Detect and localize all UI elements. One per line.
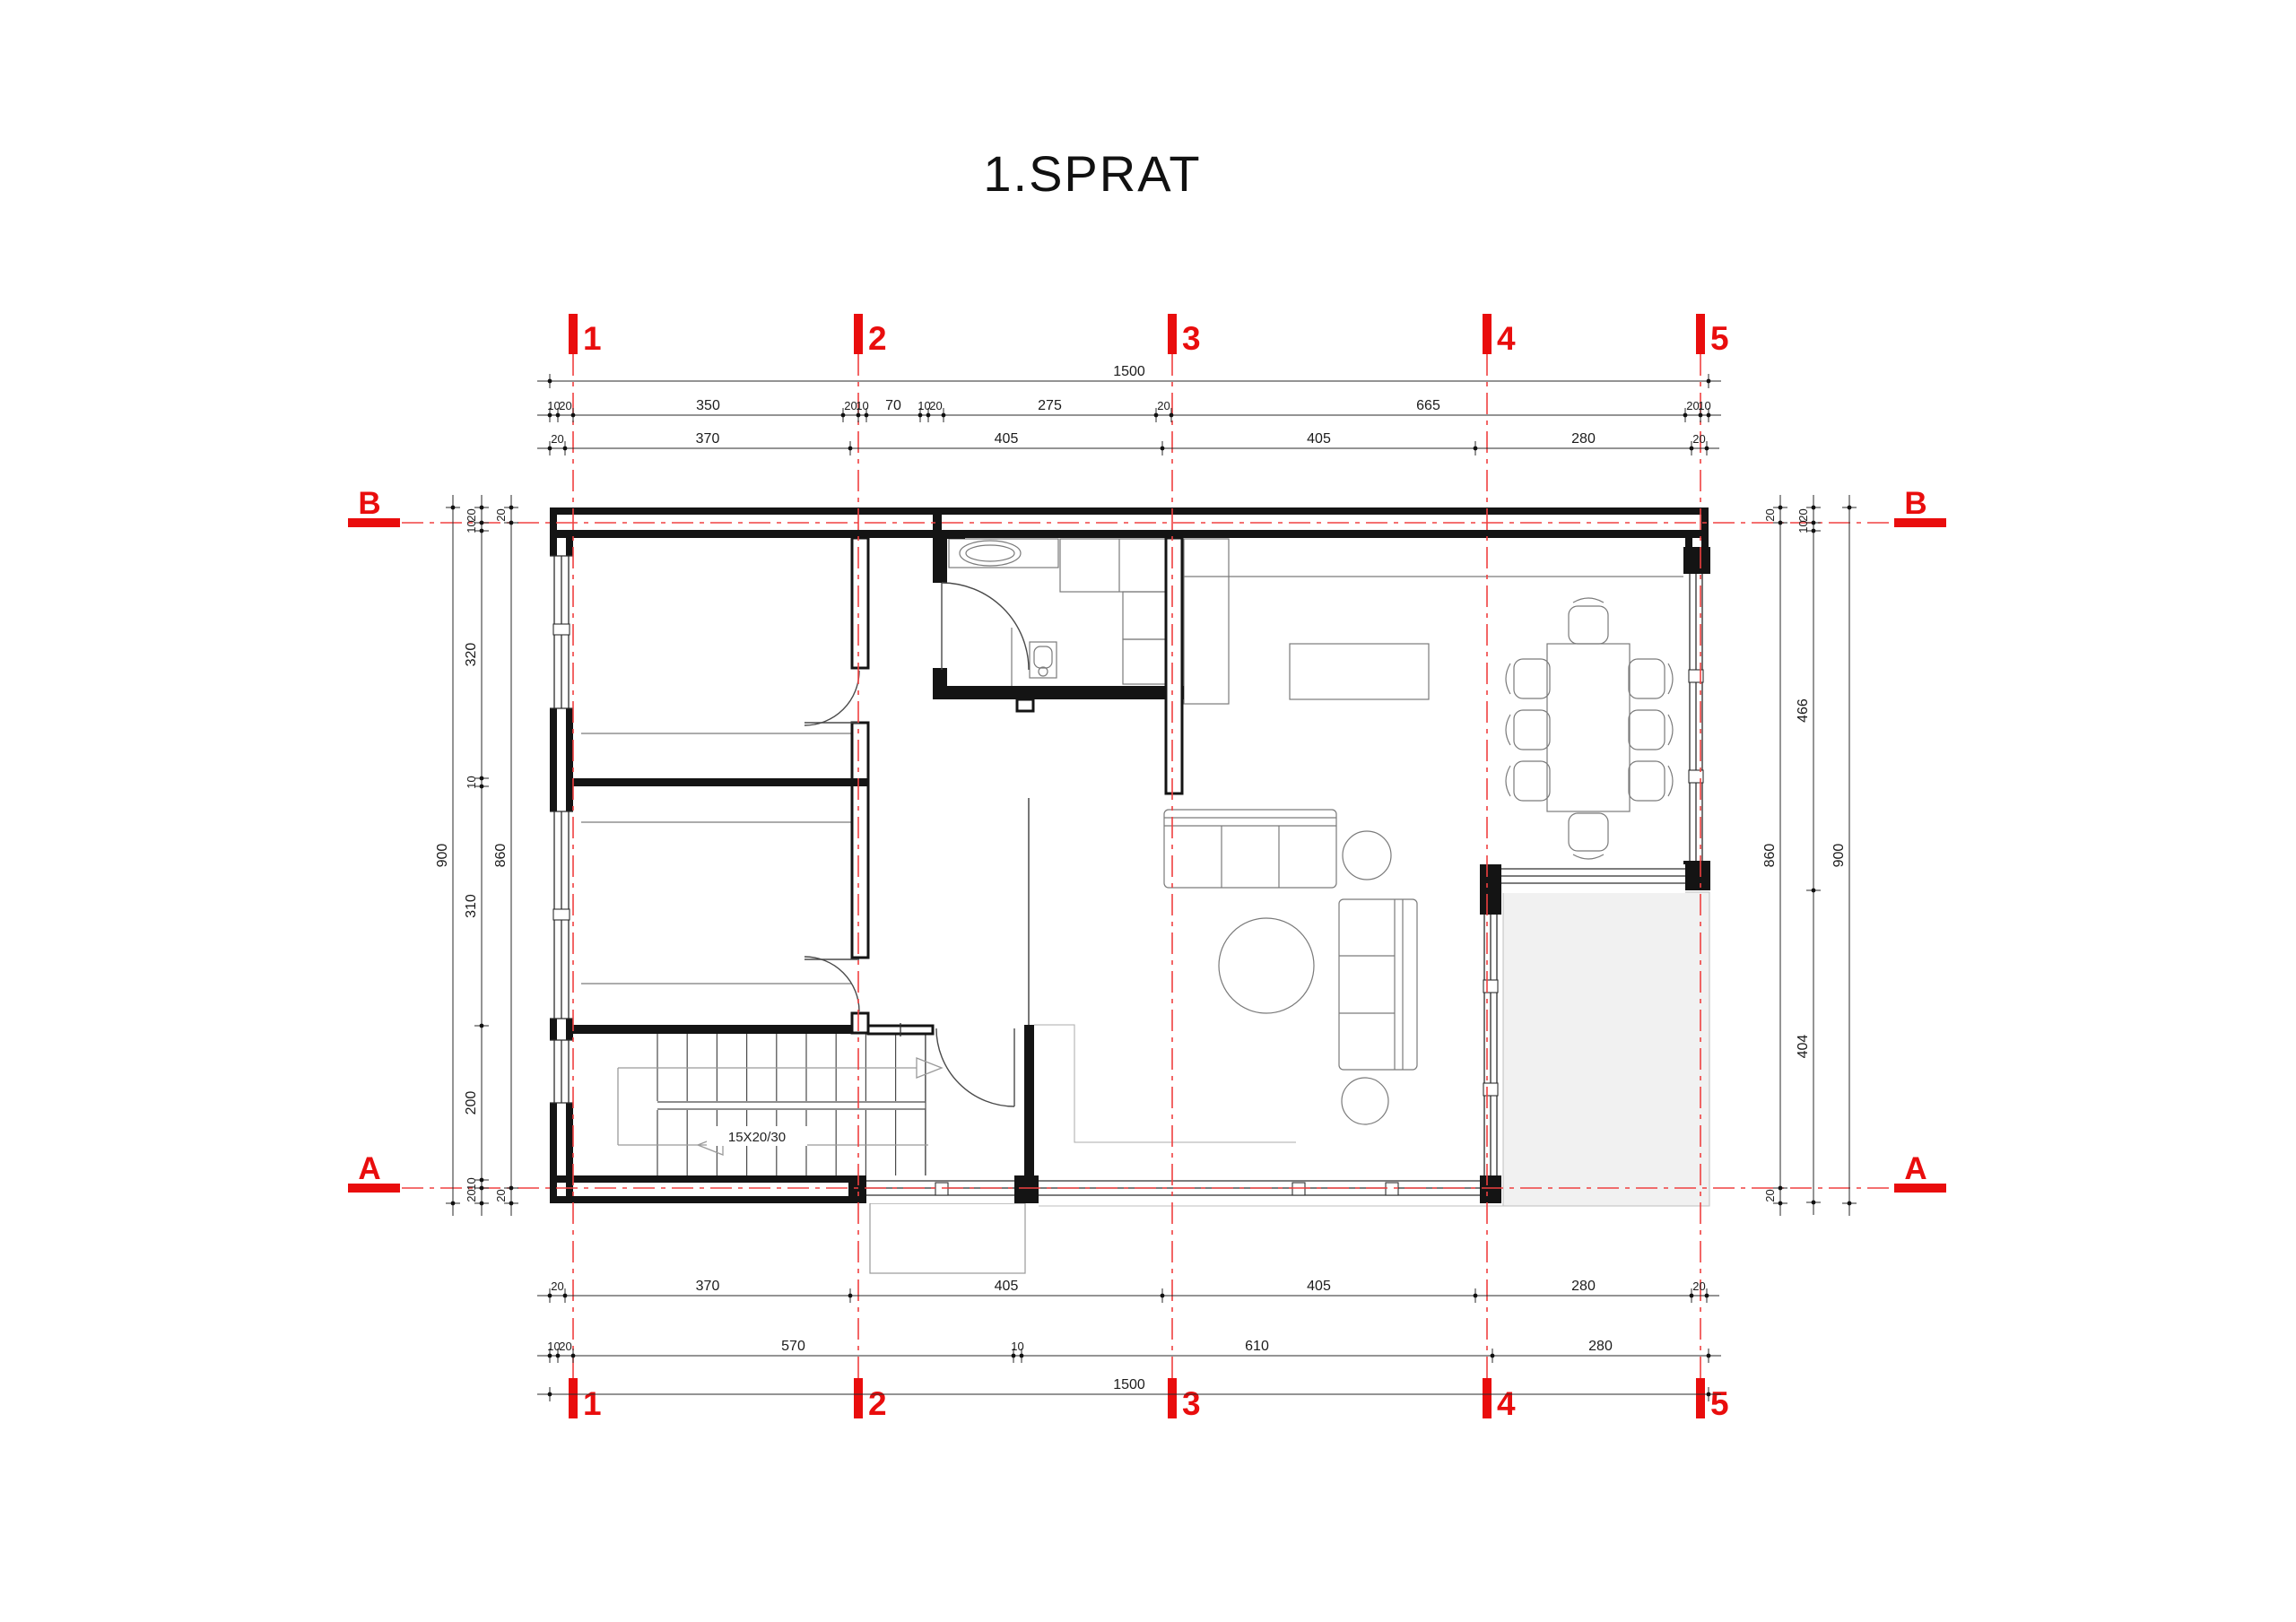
- washer: [1123, 592, 1166, 639]
- dim-label: 20: [1692, 432, 1705, 446]
- dim-dot: [1707, 1392, 1711, 1397]
- dim-dot: [548, 1294, 552, 1298]
- dim-label: 280: [1588, 1339, 1613, 1354]
- dim-dot: [548, 413, 552, 418]
- grid-label-top: 4: [1497, 320, 1516, 357]
- dim-dot: [509, 1201, 514, 1206]
- dim-dot: [1779, 506, 1783, 510]
- stair-up-arrow: [917, 1058, 942, 1078]
- dim-label: 70: [885, 398, 901, 413]
- dim-label: 860: [493, 844, 509, 868]
- dim-label: 20: [494, 1189, 508, 1201]
- bathroom-fixtures: [949, 539, 1166, 686]
- dining-furniture: [1506, 598, 1673, 859]
- dim-label: 280: [1571, 1279, 1596, 1294]
- dim-label: 900: [1831, 844, 1847, 868]
- dim-label: 10: [1796, 520, 1810, 533]
- dim-dot: [1170, 413, 1174, 418]
- dining-table: [1547, 644, 1630, 811]
- dim-dot: [1491, 1354, 1495, 1358]
- dim-label: 310: [464, 894, 479, 918]
- dim-dot: [1707, 379, 1711, 384]
- grid-label-bottom: 3: [1182, 1385, 1201, 1422]
- dim-label: 20: [551, 1279, 563, 1293]
- door-living-entry: [936, 1028, 1014, 1106]
- grid-label-top: 3: [1182, 320, 1201, 357]
- dim-label: 900: [435, 844, 450, 868]
- dim-dot: [480, 1024, 484, 1028]
- dim-label: 20: [465, 1189, 478, 1201]
- dim-label: 20: [1157, 399, 1170, 412]
- dim-dot: [1812, 521, 1816, 525]
- side-table-top: [1343, 831, 1391, 880]
- grid-label-right: B: [1904, 486, 1926, 521]
- dim-dot: [480, 521, 484, 525]
- dim-label: 20: [551, 432, 563, 446]
- dim-dot: [1707, 1354, 1711, 1358]
- dim-label: 860: [1762, 844, 1778, 868]
- bedroom-furniture: [581, 733, 852, 984]
- dim-label: 20: [559, 1340, 571, 1353]
- dining-chair: [1629, 710, 1673, 750]
- wall-grid3: [1166, 538, 1182, 794]
- dim-dot: [1690, 447, 1694, 451]
- wall-hall-living: [1024, 1025, 1034, 1177]
- dim-label: 570: [781, 1339, 805, 1354]
- dim-dot: [918, 413, 923, 418]
- window-mullion: [935, 1183, 948, 1195]
- dim-dot: [1474, 1294, 1478, 1298]
- terraces: [870, 892, 1709, 1273]
- dim-dot: [509, 1186, 514, 1191]
- grid-label-bottom: 1: [583, 1385, 602, 1422]
- dining-chair: [1629, 659, 1673, 698]
- vanity-counter: [1060, 539, 1166, 592]
- dim-dot: [563, 1294, 568, 1298]
- wall-bath-west-lower: [933, 668, 947, 686]
- door-bathroom: [942, 583, 1029, 670]
- dim-dot: [1812, 889, 1816, 893]
- dim-dot: [548, 1354, 552, 1358]
- sofa-horizontal: [1164, 810, 1336, 888]
- dim-dot: [1020, 1354, 1024, 1358]
- side-table-bottom: [1342, 1078, 1388, 1124]
- dim-label: 10: [1011, 1340, 1023, 1353]
- dim-dot: [1707, 413, 1711, 418]
- dim-label: 1500: [1113, 1377, 1145, 1392]
- bathtub-platform: [949, 539, 1058, 568]
- grid-label-top: 5: [1710, 320, 1729, 357]
- drawing-sheet: 1.SPRAT: [0, 0, 2296, 1622]
- grid-marker-top: [1696, 314, 1705, 354]
- staircase: 15X20/30: [618, 1034, 942, 1175]
- dim-dot: [1812, 506, 1816, 510]
- dim-label: 10: [1698, 399, 1710, 412]
- door-bedroom1: [804, 671, 859, 725]
- dim-label: 405: [995, 431, 1019, 447]
- bathtub: [960, 541, 1021, 566]
- dim-label: 370: [696, 431, 720, 447]
- grid-label-left: A: [358, 1151, 380, 1186]
- dim-dot: [1474, 447, 1478, 451]
- dim-dot: [480, 529, 484, 533]
- dim-dot: [451, 506, 456, 510]
- dim-dot: [1705, 1294, 1709, 1298]
- dim-label: 350: [696, 398, 720, 413]
- grid-marker-top: [1168, 314, 1177, 354]
- dim-dot: [848, 1294, 853, 1298]
- grid-label-bottom: 5: [1710, 1385, 1729, 1422]
- dim-label: 20: [559, 399, 571, 412]
- dim-dot: [509, 521, 514, 525]
- dim-dot: [1779, 1186, 1783, 1191]
- dim-dot: [926, 413, 931, 418]
- dim-label: 10: [465, 776, 478, 788]
- dim-dot: [1154, 413, 1159, 418]
- grid-marker-bottom: [854, 1378, 863, 1418]
- wall-bath-west-upper: [933, 538, 947, 583]
- window-mullion: [1292, 1183, 1305, 1195]
- dim-label: 610: [1245, 1339, 1269, 1354]
- dining-chair: [1506, 710, 1550, 750]
- dim-label: 370: [696, 1279, 720, 1294]
- floor-plan-canvas: 1.SPRAT: [0, 0, 2296, 1622]
- dim-label: 10: [856, 399, 868, 412]
- dim-dot: [548, 1392, 552, 1397]
- dim-dot: [841, 413, 846, 418]
- dim-dot: [1699, 413, 1703, 418]
- wall-bedroom-divider: [573, 778, 868, 786]
- dim-dot: [1848, 506, 1852, 510]
- grid-marker-bottom: [1696, 1378, 1705, 1418]
- grid-marker-top: [569, 314, 578, 354]
- dim-label: 20: [929, 399, 942, 412]
- dim-label: 20: [1796, 508, 1810, 521]
- dim-dot: [1779, 1201, 1783, 1206]
- dim-label: 280: [1571, 431, 1596, 447]
- grid-marker-top: [854, 314, 863, 354]
- dim-dot: [548, 379, 552, 384]
- grid-label-right: A: [1904, 1151, 1926, 1186]
- dim-dot: [563, 447, 568, 451]
- dim-dot: [480, 1178, 484, 1183]
- window-mullion: [1483, 1083, 1498, 1096]
- dim-dot: [480, 776, 484, 781]
- dim-dot: [480, 1186, 484, 1191]
- dim-label: 20: [1763, 1189, 1777, 1201]
- dim-dot: [1812, 529, 1816, 533]
- dim-dot: [509, 506, 514, 510]
- dining-chair: [1506, 761, 1550, 801]
- wall-grid2-lower: [852, 1013, 868, 1033]
- dim-label: 405: [1307, 431, 1331, 447]
- coffee-table: [1219, 918, 1314, 1013]
- window-mullion: [1483, 980, 1498, 993]
- dim-label: 20: [494, 508, 508, 521]
- dim-label: 405: [995, 1279, 1019, 1294]
- dim-dot: [548, 447, 552, 451]
- floor-edge-line: [1034, 1025, 1296, 1142]
- dim-dot: [1690, 1294, 1694, 1298]
- sofa-vertical: [1339, 899, 1417, 1070]
- kitchen-tall-cabinets: [1184, 539, 1229, 704]
- grid-label-bottom: 2: [868, 1385, 887, 1422]
- dim-dot: [942, 413, 946, 418]
- dim-label: 466: [1796, 698, 1811, 723]
- dim-dot: [571, 413, 576, 418]
- kitchen-fixtures: [1184, 539, 1685, 704]
- bathtub-inner: [966, 545, 1014, 561]
- dim-dot: [1683, 413, 1688, 418]
- dim-dot: [1705, 447, 1709, 451]
- dim-label: 20: [1692, 1279, 1705, 1293]
- dim-label: 10: [465, 1177, 478, 1190]
- dim-label: 320: [464, 643, 479, 667]
- shower: [1123, 639, 1166, 684]
- interior-walls: [573, 538, 1184, 1177]
- dim-dot: [556, 413, 561, 418]
- dining-chair: [1569, 813, 1608, 859]
- dim-dot: [1848, 1201, 1852, 1206]
- window-mullion: [553, 909, 570, 920]
- grid-label-left: B: [358, 486, 380, 521]
- window-mullion: [1386, 1183, 1398, 1195]
- plan-title: 1.SPRAT: [983, 145, 1201, 202]
- wall-grid2-upper: [852, 538, 868, 668]
- grid-marker-top: [1483, 314, 1492, 354]
- dim-label: 1500: [1113, 364, 1145, 379]
- dim-label: 20: [1763, 508, 1777, 521]
- dim-dot: [857, 413, 861, 418]
- dim-dot: [865, 413, 869, 418]
- grid-label-top: 1: [583, 320, 602, 357]
- wall-stair-hall: [573, 1025, 853, 1034]
- entry-porch: [870, 1203, 1025, 1273]
- grid-label-bottom: 4: [1497, 1385, 1516, 1422]
- dim-dot: [556, 1354, 561, 1358]
- dim-dot: [1779, 521, 1783, 525]
- dim-dot: [480, 785, 484, 789]
- wall-bath-nib: [1017, 699, 1033, 711]
- dim-dot: [848, 447, 853, 451]
- wall-bath-south: [933, 686, 1184, 699]
- stair-label: 15X20/30: [728, 1130, 786, 1145]
- grid-label-top: 2: [868, 320, 887, 357]
- dining-chair: [1506, 659, 1550, 698]
- dim-dot: [451, 1201, 456, 1206]
- grid-marker-bottom: [569, 1378, 578, 1418]
- toilet-bowl: [1034, 646, 1052, 668]
- dim-dot: [480, 506, 484, 510]
- dim-dot: [1012, 1354, 1016, 1358]
- dim-label: 404: [1796, 1035, 1811, 1059]
- dim-label: 405: [1307, 1279, 1331, 1294]
- window-mullion: [553, 624, 570, 635]
- dim-dot: [571, 1354, 576, 1358]
- living-furniture: [1029, 798, 1417, 1142]
- terrace-right: [1503, 892, 1709, 1206]
- kitchen-island: [1290, 644, 1429, 699]
- dining-chair: [1629, 761, 1673, 801]
- dining-chair: [1569, 598, 1608, 644]
- dim-dot: [1812, 1201, 1816, 1205]
- dim-dot: [480, 1201, 484, 1206]
- dim-label: 200: [464, 1091, 479, 1115]
- wall-grid2-middle: [852, 723, 868, 958]
- dim-label: 10: [465, 520, 478, 533]
- dim-dot: [1161, 447, 1165, 451]
- grid-marker-bottom: [1168, 1378, 1177, 1418]
- dim-label: 275: [1038, 398, 1062, 413]
- grid-marker-bottom: [1483, 1378, 1492, 1418]
- dim-label: 665: [1416, 398, 1440, 413]
- dim-dot: [1161, 1294, 1165, 1298]
- dim-label: 20: [465, 508, 478, 521]
